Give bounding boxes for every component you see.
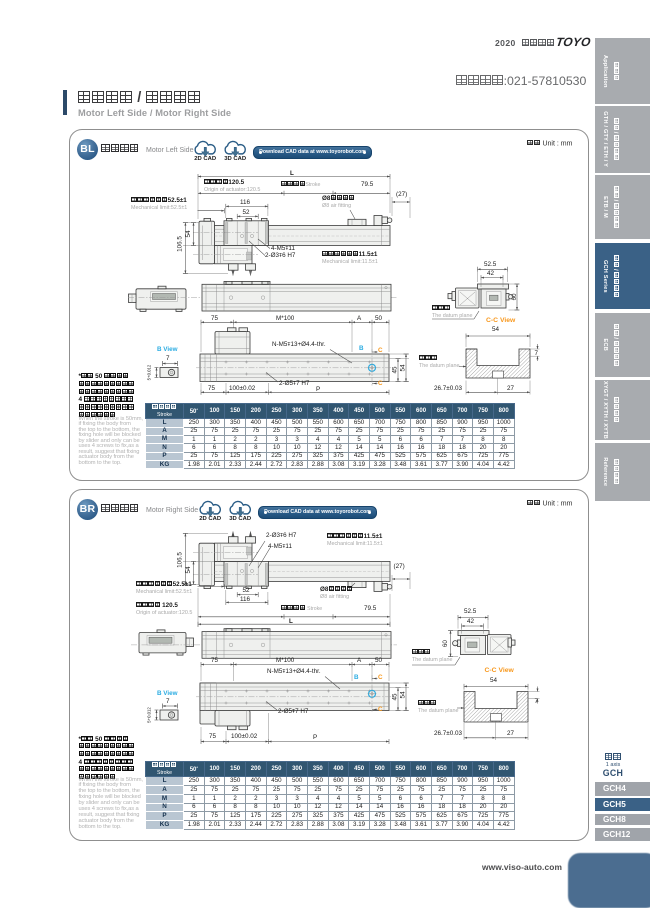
svg-text:54: 54 [400,691,407,699]
svg-text:5+0.012: 5+0.012 [147,364,152,380]
svg-text:60: 60 [442,640,449,648]
svg-text:5+0.012: 5+0.012 [147,707,152,723]
svg-text:54: 54 [185,566,192,574]
svg-text:54: 54 [185,230,192,238]
svg-text:106.5: 106.5 [177,552,184,568]
svg-text:45: 45 [392,693,399,701]
svg-text:60: 60 [511,293,518,301]
svg-text:45: 45 [392,366,399,374]
svg-text:54: 54 [400,364,407,372]
svg-text:106.5: 106.5 [177,236,184,252]
